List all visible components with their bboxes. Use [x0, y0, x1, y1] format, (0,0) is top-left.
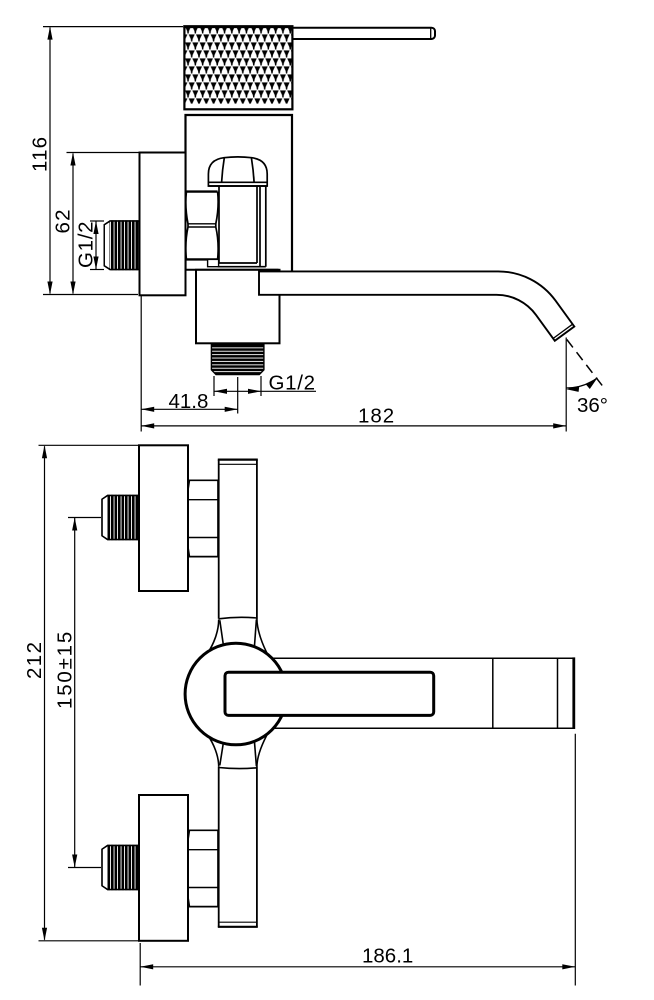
- svg-text:G1/2: G1/2: [75, 221, 98, 268]
- svg-text:36°: 36°: [577, 394, 608, 417]
- svg-text:150±15: 150±15: [54, 630, 77, 709]
- svg-text:212: 212: [23, 641, 46, 679]
- svg-text:116: 116: [29, 136, 52, 172]
- svg-text:G1/2: G1/2: [269, 372, 316, 395]
- svg-text:41.8: 41.8: [169, 390, 209, 413]
- svg-text:62: 62: [52, 208, 75, 233]
- svg-text:182: 182: [358, 405, 395, 428]
- svg-text:186.1: 186.1: [362, 945, 413, 968]
